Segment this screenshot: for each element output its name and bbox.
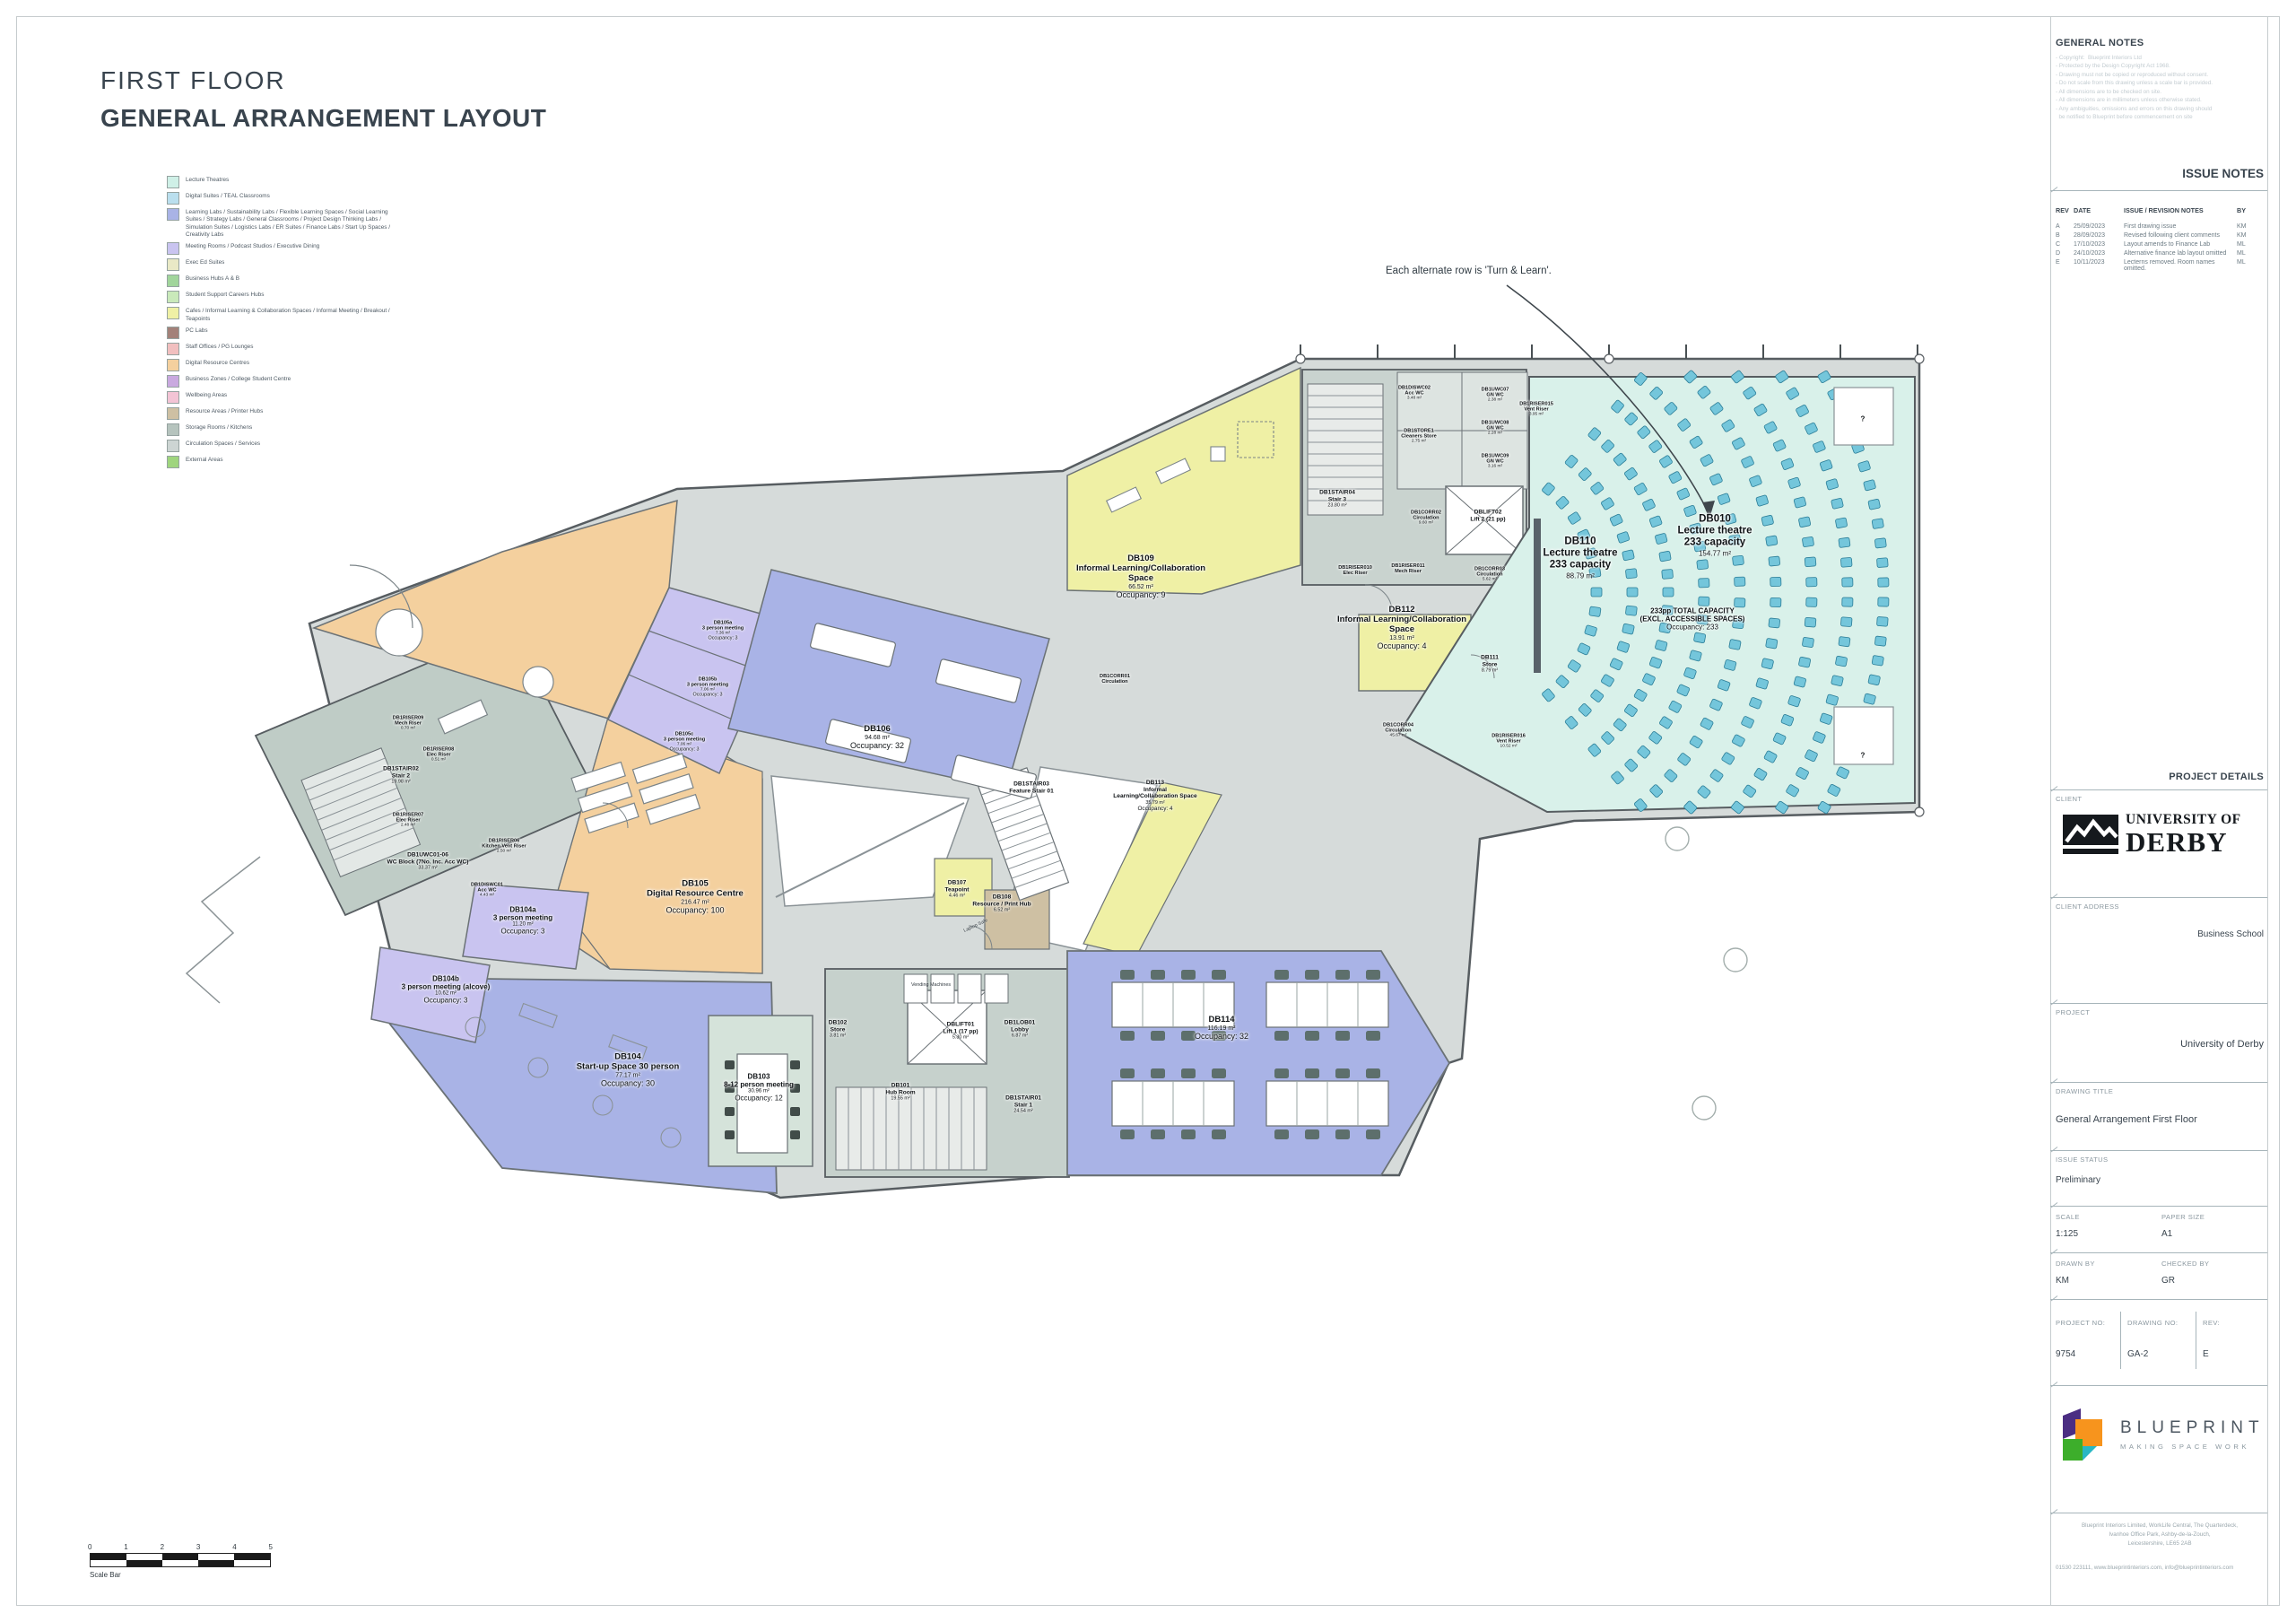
misc-label-vending: Vending Machines xyxy=(911,982,951,988)
scale-bar-cell xyxy=(198,1554,234,1560)
issue-date: 17/10/2023 xyxy=(2074,241,2124,248)
general-note-line: - Protected by the Design Copyright Act … xyxy=(2056,62,2264,70)
issue-col-header: ISSUE / REVISION NOTES xyxy=(2124,206,2237,214)
derby-logo-line1: UNIVERSITY OF xyxy=(2126,813,2241,827)
scale-bar-cell xyxy=(162,1560,198,1566)
issue-status-value: Preliminary xyxy=(2056,1175,2264,1185)
project-details-heading: PROJECT DETAILS xyxy=(2056,772,2264,782)
issue-date: 24/10/2023 xyxy=(2074,250,2124,257)
general-note-line: - Any ambiguities, omissions and errors … xyxy=(2056,105,2264,113)
issue-by: KM xyxy=(2237,232,2258,239)
issue-notes-text: Alternative finance lab layout omitted xyxy=(2124,250,2237,257)
project-label: PROJECT xyxy=(2056,1008,2264,1016)
scale-bar-cell xyxy=(126,1554,162,1560)
derby-mountains-icon xyxy=(2066,822,2117,842)
issue-col-header: REV xyxy=(2056,206,2074,214)
project-value: University of Derby xyxy=(2056,1039,2264,1050)
blueprint-address-line: Blueprint Interiors Limited, WorkLife Ce… xyxy=(2056,1522,2264,1530)
issue-col-header: BY xyxy=(2237,206,2258,214)
drawing-title-value: General Arrangement First Floor xyxy=(2056,1114,2264,1125)
scale-bar-cell xyxy=(198,1560,234,1566)
issue-date: 10/11/2023 xyxy=(2074,259,2124,272)
issue-rev: C xyxy=(2056,241,2074,248)
derby-logo-line2: DERBY xyxy=(2126,828,2241,856)
scale-bar-row xyxy=(91,1560,270,1566)
turn-and-learn-annotation: Each alternate row is 'Turn & Learn'. xyxy=(1386,266,1552,276)
scale-bar-cell xyxy=(91,1560,126,1566)
scale-number: 1 xyxy=(124,1543,127,1551)
issue-rev: E xyxy=(2056,259,2074,272)
paper-size-value: A1 xyxy=(2161,1229,2264,1239)
issue-row: E10/11/2023Lecterns removed. Room names … xyxy=(2056,259,2266,272)
issue-col-header: DATE xyxy=(2074,206,2124,214)
issue-date: 28/09/2023 xyxy=(2074,232,2124,239)
scale-bar-numbers: 012345 xyxy=(88,1543,273,1551)
issue-status-label: ISSUE STATUS xyxy=(2056,1155,2264,1164)
derby-logo-mark xyxy=(2063,815,2118,854)
lift-2 xyxy=(1446,486,1523,554)
issue-notes-text: Lecterns removed. Room names omitted. xyxy=(2124,259,2237,272)
general-notes: - Copyright: Blueprint Interiors Ltd- Pr… xyxy=(2056,54,2264,122)
general-note-line: - All dimensions are in millimeters unle… xyxy=(2056,96,2264,104)
client-address-label: CLIENT ADDRESS xyxy=(2056,903,2264,911)
theatre-screen xyxy=(1534,519,1541,673)
issue-table-header: REVDATEISSUE / REVISION NOTESBY xyxy=(2056,206,2266,214)
general-notes-heading: GENERAL NOTES xyxy=(2056,38,2264,48)
general-note-line: - Copyright: Blueprint Interiors Ltd xyxy=(2056,54,2264,62)
scale-bar-cell xyxy=(162,1554,198,1560)
scale-bar-cell xyxy=(234,1554,270,1560)
zone-db104a xyxy=(463,884,588,969)
general-note-line: be notified to Blueprint before commence… xyxy=(2056,113,2264,121)
drawing-no-value: GA-2 xyxy=(2127,1349,2190,1359)
floor-plan xyxy=(54,179,2045,1301)
zone-db107-teapoint xyxy=(935,859,992,916)
issue-notes-text: First drawing issue xyxy=(2124,223,2237,230)
rev-label: REV: xyxy=(2203,1319,2257,1327)
issue-rev: A xyxy=(2056,223,2074,230)
client-label: CLIENT xyxy=(2056,795,2264,803)
checked-by-value: GR xyxy=(2161,1276,2264,1286)
client-address-value: Business School xyxy=(2056,929,2264,939)
drawing-type-title: GENERAL ARRANGEMENT LAYOUT xyxy=(100,104,546,133)
issue-by: KM xyxy=(2237,223,2258,230)
floor-title: FIRST FLOOR xyxy=(100,66,286,95)
drawing-sheet: { "sheet": { "title_line1": "FIRST FLOOR… xyxy=(0,0,2296,1622)
drawing-no-label: DRAWING NO: xyxy=(2127,1319,2190,1327)
scale-number: 0 xyxy=(88,1543,91,1551)
issue-rev: D xyxy=(2056,250,2074,257)
issue-notes-table: REVDATEISSUE / REVISION NOTESBYA25/09/20… xyxy=(2056,206,2266,275)
external-trees xyxy=(1665,827,1747,1120)
scale-number: 4 xyxy=(232,1543,236,1551)
scale-number: 5 xyxy=(268,1543,272,1551)
blueprint-address-line: Ivanhoe Office Park, Ashby-de-la-Zouch, xyxy=(2056,1530,2264,1539)
stair-1 xyxy=(836,1087,987,1170)
issue-notes-text: Revised following client comments xyxy=(2124,232,2237,239)
issue-by: ML xyxy=(2237,259,2258,272)
checked-by-label: CHECKED BY xyxy=(2161,1260,2264,1268)
blueprint-address-line: Leicestershire, LE65 2AB xyxy=(2056,1539,2264,1548)
issue-row: D24/10/2023Alternative finance lab layou… xyxy=(2056,250,2266,257)
scale-bar: 012345 Scale Bar xyxy=(90,1543,278,1579)
zone-db109 xyxy=(1067,368,1300,594)
scale-number: 3 xyxy=(196,1543,200,1551)
issue-row: A25/09/2023First drawing issueKM xyxy=(2056,223,2266,230)
issue-row: C17/10/2023Layout amends to Finance LabM… xyxy=(2056,241,2266,248)
blueprint-logo: BLUEPRINT MAKING SPACE WORK xyxy=(2061,1407,2265,1462)
general-note-line: - Drawing must not be copied or reproduc… xyxy=(2056,71,2264,79)
drawing-title-label: DRAWING TITLE xyxy=(2056,1087,2264,1095)
general-note-line: - Do not scale from this drawing unless … xyxy=(2056,79,2264,87)
blueprint-cube-icon xyxy=(2061,1407,2109,1462)
blueprint-address: Blueprint Interiors Limited, WorkLife Ce… xyxy=(2056,1522,2264,1548)
issue-by: ML xyxy=(2237,250,2258,257)
scale-bar-cell xyxy=(234,1560,270,1566)
issue-by: ML xyxy=(2237,241,2258,248)
university-of-derby-logo: UNIVERSITY OF DERBY xyxy=(2063,813,2241,856)
zone-db108-resource xyxy=(985,890,1049,949)
panel-divider-line xyxy=(2050,16,2051,1606)
scale-bar-cell xyxy=(126,1560,162,1566)
issue-rev: B xyxy=(2056,232,2074,239)
issue-notes-text: Layout amends to Finance Lab xyxy=(2124,241,2237,248)
bay-windows xyxy=(187,857,260,1003)
blueprint-contact: 01530 223111, www.blueprintinteriors.com… xyxy=(2056,1565,2264,1571)
paper-size-label: PAPER SIZE xyxy=(2161,1213,2264,1221)
scale-bar-blocks xyxy=(90,1553,271,1567)
general-note-line: - All dimensions are to be checked on si… xyxy=(2056,88,2264,96)
scale-bar-row xyxy=(91,1554,270,1560)
issue-notes-heading: ISSUE NOTES xyxy=(2056,167,2264,180)
scale-bar-cell xyxy=(91,1554,126,1560)
panel-inner-line xyxy=(2267,16,2268,1606)
scale-bar-label: Scale Bar xyxy=(90,1571,278,1579)
rev-value: E xyxy=(2203,1349,2257,1359)
stair-3 xyxy=(1308,384,1383,515)
blueprint-tagline: MAKING SPACE WORK xyxy=(2120,1443,2265,1451)
issue-date: 25/09/2023 xyxy=(2074,223,2124,230)
issue-row: B28/09/2023Revised following client comm… xyxy=(2056,232,2266,239)
scale-number: 2 xyxy=(161,1543,164,1551)
blueprint-name: BLUEPRINT xyxy=(2120,1418,2265,1438)
